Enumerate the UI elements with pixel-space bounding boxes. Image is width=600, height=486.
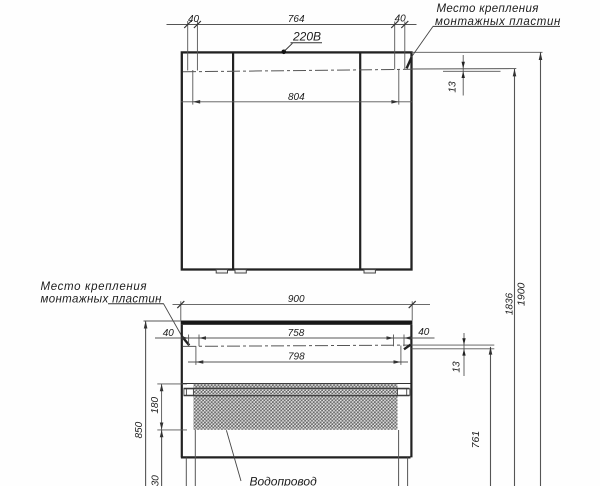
svg-text:1836: 1836 [504,292,515,315]
svg-text:764: 764 [288,14,305,25]
svg-text:330: 330 [151,475,162,486]
svg-text:Место крепления: Место крепления [437,3,539,15]
svg-text:40: 40 [418,327,430,338]
svg-text:40: 40 [188,14,200,25]
svg-text:монтажных пластин: монтажных пластин [435,16,561,28]
svg-text:13: 13 [448,81,459,93]
svg-text:850: 850 [134,421,145,438]
svg-text:900: 900 [288,294,305,305]
svg-text:761: 761 [470,431,482,449]
svg-text:Водопровод: Водопровод [250,475,318,486]
svg-text:13: 13 [452,361,463,373]
svg-text:40: 40 [163,328,175,339]
svg-text:758: 758 [288,328,305,339]
svg-text:Место крепления: Место крепления [41,281,148,293]
svg-text:40: 40 [395,14,407,25]
svg-text:220В: 220В [292,29,321,43]
svg-text:804: 804 [288,92,305,103]
svg-text:798: 798 [288,352,305,363]
svg-text:180: 180 [150,397,161,414]
svg-text:1900: 1900 [516,282,528,306]
